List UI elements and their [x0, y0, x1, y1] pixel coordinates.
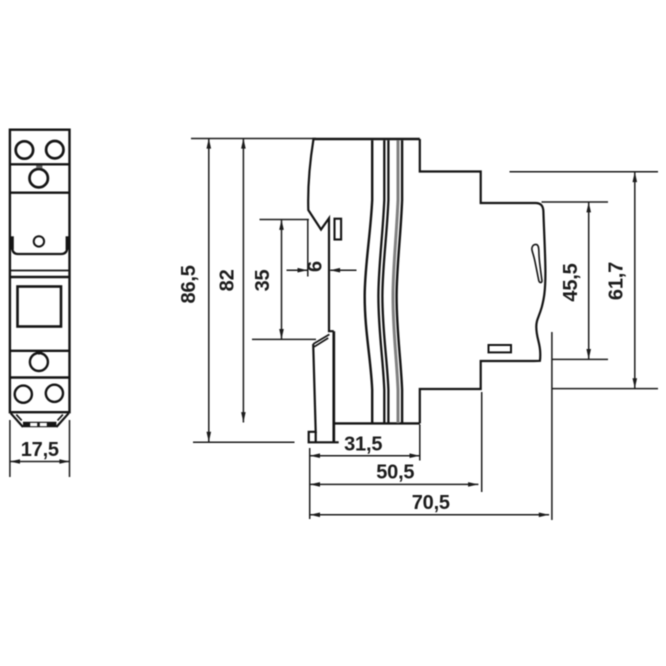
svg-text:17,5: 17,5 — [21, 439, 59, 461]
svg-text:61,7: 61,7 — [606, 262, 628, 300]
svg-text:82: 82 — [217, 269, 239, 291]
svg-text:70,5: 70,5 — [412, 492, 450, 514]
svg-text:45,5: 45,5 — [560, 263, 582, 301]
svg-text:31,5: 31,5 — [344, 433, 382, 455]
svg-text:35: 35 — [252, 270, 274, 292]
svg-text:50,5: 50,5 — [376, 461, 414, 483]
svg-text:6: 6 — [305, 261, 327, 272]
svg-text:86,5: 86,5 — [178, 265, 200, 303]
